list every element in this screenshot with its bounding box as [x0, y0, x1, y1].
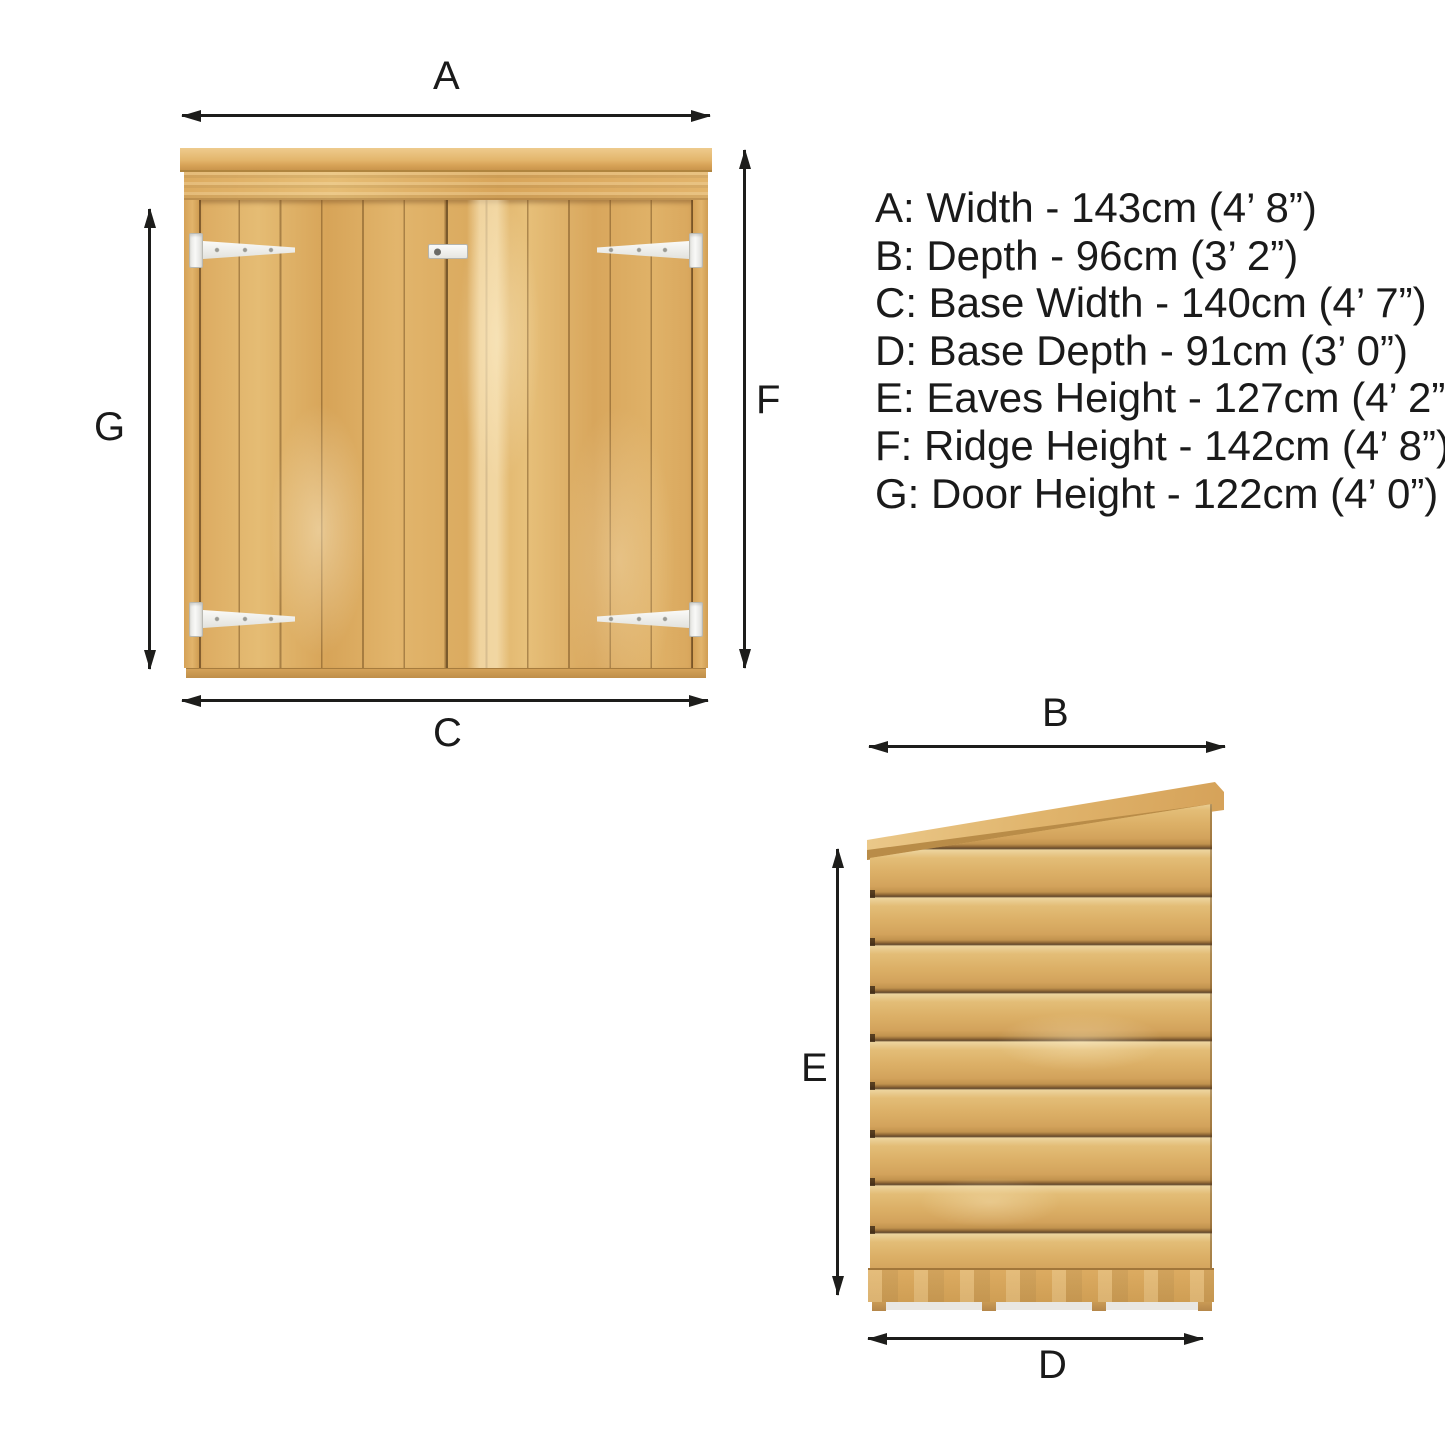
skid-foot-4 — [1198, 1302, 1212, 1311]
skid-foot-1 — [872, 1302, 886, 1311]
legend-item-base-depth: D: Base Depth - 91cm (3’ 0”) — [875, 327, 1445, 375]
front-left-frame — [184, 200, 199, 668]
front-base-plinth — [186, 668, 706, 678]
side-overlap-cladding — [870, 802, 1212, 1268]
base-depth-arrow — [868, 1337, 1203, 1340]
legend-item-door-height: G: Door Height - 122cm (4’ 0”) — [875, 470, 1445, 518]
door-center-batten — [467, 200, 510, 668]
hinge-plate-bottom-right — [689, 602, 703, 637]
legend-item-width: A: Width - 143cm (4’ 8”) — [875, 184, 1445, 232]
legend-item-base-width: C: Base Width - 140cm (4’ 7”) — [875, 279, 1445, 327]
front-right-frame — [693, 200, 708, 668]
shed-front-view — [180, 148, 712, 678]
eaves-height-arrow — [836, 849, 839, 1295]
double-doors — [199, 200, 693, 668]
side-base-rail — [868, 1268, 1214, 1302]
ground-shadow — [874, 1302, 1208, 1310]
width-arrow — [182, 114, 710, 117]
skid-foot-2 — [982, 1302, 996, 1311]
hinge-plate-top-right — [689, 233, 703, 268]
product-dimension-diagram: A G F C A: Width - 143cm (4’ 8”) B: Dept… — [0, 0, 1445, 1445]
dimension-label-base-depth: D — [1038, 1345, 1067, 1385]
front-roof-cap — [180, 148, 712, 172]
legend-item-ridge-height: F: Ridge Height - 142cm (4’ 8”) — [875, 422, 1445, 470]
dimension-label-eaves-height: E — [801, 1048, 828, 1088]
hinge-plate-bottom-left — [189, 602, 203, 637]
ridge-height-arrow — [743, 150, 746, 668]
dimension-label-depth: B — [1042, 693, 1069, 733]
door-meeting-gap — [446, 200, 448, 668]
dimension-label-base-width: C — [433, 713, 462, 753]
depth-arrow — [869, 745, 1225, 748]
dimension-legend: A: Width - 143cm (4’ 8”) B: Depth - 96cm… — [875, 184, 1445, 517]
skid-foot-3 — [1092, 1302, 1106, 1311]
dimension-label-ridge-height: F — [756, 380, 780, 420]
shed-side-view — [860, 780, 1226, 1312]
door-latch — [428, 244, 468, 259]
dimension-label-door-height: G — [94, 407, 125, 447]
legend-item-depth: B: Depth - 96cm (3’ 2”) — [875, 232, 1445, 280]
dimension-label-width: A — [433, 56, 460, 96]
front-header-beam — [184, 172, 708, 200]
legend-item-eaves-height: E: Eaves Height - 127cm (4’ 2”) — [875, 374, 1445, 422]
hinge-plate-top-left — [189, 233, 203, 268]
door-height-arrow — [148, 209, 151, 669]
base-width-arrow — [182, 699, 708, 702]
